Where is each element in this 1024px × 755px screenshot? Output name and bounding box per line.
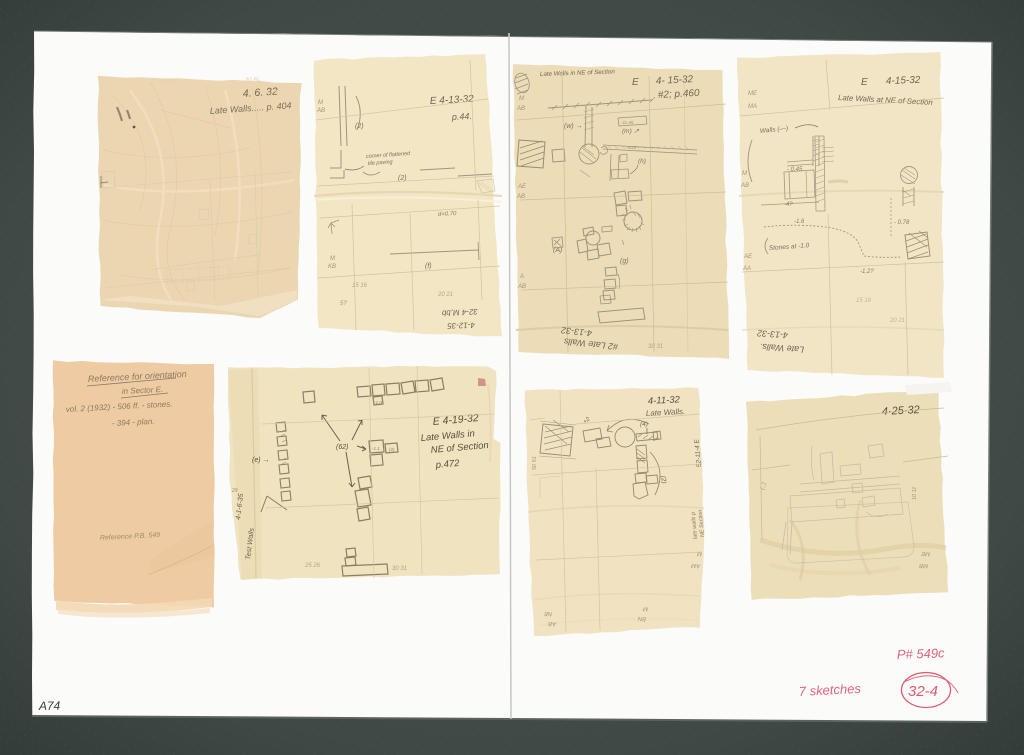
svg-text:M: M bbox=[330, 256, 335, 262]
svg-text:MA: MA bbox=[748, 104, 757, 110]
svg-text:30 31: 30 31 bbox=[392, 566, 407, 572]
svg-text:32-4: 32-4 bbox=[908, 683, 938, 700]
svg-text:-4?: -4? bbox=[784, 202, 793, 208]
svg-text:(4): (4) bbox=[640, 421, 648, 428]
svg-text:M: M bbox=[519, 96, 524, 102]
svg-text:A: A bbox=[519, 274, 524, 280]
svg-text:MB: MB bbox=[919, 562, 928, 569]
svg-text:E: E bbox=[632, 77, 639, 88]
svg-text:25 26: 25 26 bbox=[304, 563, 321, 569]
svg-text:AB: AB bbox=[517, 284, 526, 290]
svg-text:d=0.70: d=0.70 bbox=[438, 211, 457, 218]
svg-text:20 21: 20 21 bbox=[889, 318, 905, 324]
svg-text:30 31: 30 31 bbox=[648, 344, 663, 350]
svg-text:NE: NE bbox=[543, 610, 553, 617]
svg-text:-1.1: -1.1 bbox=[372, 446, 380, 451]
svg-text:-11.45: -11.45 bbox=[621, 120, 634, 125]
svg-text:29: 29 bbox=[231, 488, 238, 494]
svg-text:AB: AB bbox=[548, 620, 557, 627]
svg-text:4- 15-32: 4- 15-32 bbox=[656, 74, 694, 87]
svg-text:AB: AB bbox=[516, 106, 525, 112]
svg-text:p.472: p.472 bbox=[434, 458, 460, 471]
svg-text:10 11: 10 11 bbox=[912, 487, 918, 500]
svg-text:(2): (2) bbox=[389, 447, 395, 452]
svg-text:AM: AM bbox=[691, 562, 701, 569]
svg-text:1650: 1650 bbox=[161, 78, 176, 86]
svg-text:M: M bbox=[697, 550, 702, 556]
svg-text:-1.6: -1.6 bbox=[794, 219, 805, 225]
svg-text:AB: AB bbox=[740, 183, 749, 189]
svg-text:AE: AE bbox=[517, 184, 527, 190]
svg-text:(2): (2) bbox=[659, 475, 667, 484]
svg-text:AA: AA bbox=[742, 266, 751, 272]
svg-text:(f): (f) bbox=[425, 263, 432, 270]
svg-text:- 0.78: - 0.78 bbox=[894, 220, 910, 226]
svg-text:P# 549c: P# 549c bbox=[897, 645, 946, 662]
svg-text:#2; p.460: #2; p.460 bbox=[658, 88, 701, 101]
svg-text:15 16: 15 16 bbox=[352, 283, 368, 289]
svg-text:-1.0: -1.0 bbox=[374, 400, 382, 405]
svg-text:ME: ME bbox=[748, 91, 758, 97]
svg-text:p.44.: p.44. bbox=[451, 111, 473, 122]
svg-text:4-15-32: 4-15-32 bbox=[886, 75, 921, 87]
svg-text:(m) ↗: (m) ↗ bbox=[622, 128, 640, 135]
svg-text:(62): (62) bbox=[336, 444, 348, 451]
svg-text:-4.40: -4.40 bbox=[626, 145, 637, 150]
svg-text:- 0.45: - 0.45 bbox=[787, 167, 803, 173]
svg-text:-1.2?: -1.2? bbox=[860, 269, 874, 275]
svg-text:20 21: 20 21 bbox=[437, 292, 453, 298]
svg-text:50 51: 50 51 bbox=[532, 456, 538, 470]
svg-text:(2): (2) bbox=[355, 123, 364, 130]
svg-text:5?: 5? bbox=[340, 301, 347, 307]
svg-text:AB: AB bbox=[516, 194, 525, 200]
svg-text:4-12-35: 4-12-35 bbox=[447, 320, 475, 330]
svg-text:(e) →: (e) → bbox=[252, 457, 270, 464]
svg-text:M: M bbox=[643, 605, 648, 611]
svg-text:32-4 M,bb: 32-4 M,bb bbox=[441, 307, 478, 318]
svg-text:ME: ME bbox=[920, 550, 930, 557]
svg-text:KB: KB bbox=[328, 264, 336, 270]
svg-text:AE: AE bbox=[743, 254, 753, 260]
svg-text:(-.75: (-.75 bbox=[268, 90, 281, 97]
svg-text:(w) →: (w) → bbox=[564, 123, 583, 130]
svg-text:M: M bbox=[318, 100, 323, 106]
svg-text:M: M bbox=[742, 171, 747, 177]
svg-text:(h): (h) bbox=[638, 158, 646, 165]
svg-text:(g): (g) bbox=[620, 258, 629, 265]
svg-text:E: E bbox=[861, 77, 868, 88]
svg-text:AB: AB bbox=[316, 108, 325, 114]
svg-text:15 16: 15 16 bbox=[856, 298, 872, 304]
svg-text:70 FL: 70 FL bbox=[245, 77, 261, 84]
svg-text:4-11-32: 4-11-32 bbox=[648, 394, 681, 407]
svg-text:A74: A74 bbox=[38, 699, 61, 713]
svg-text:BN: BN bbox=[637, 615, 646, 622]
